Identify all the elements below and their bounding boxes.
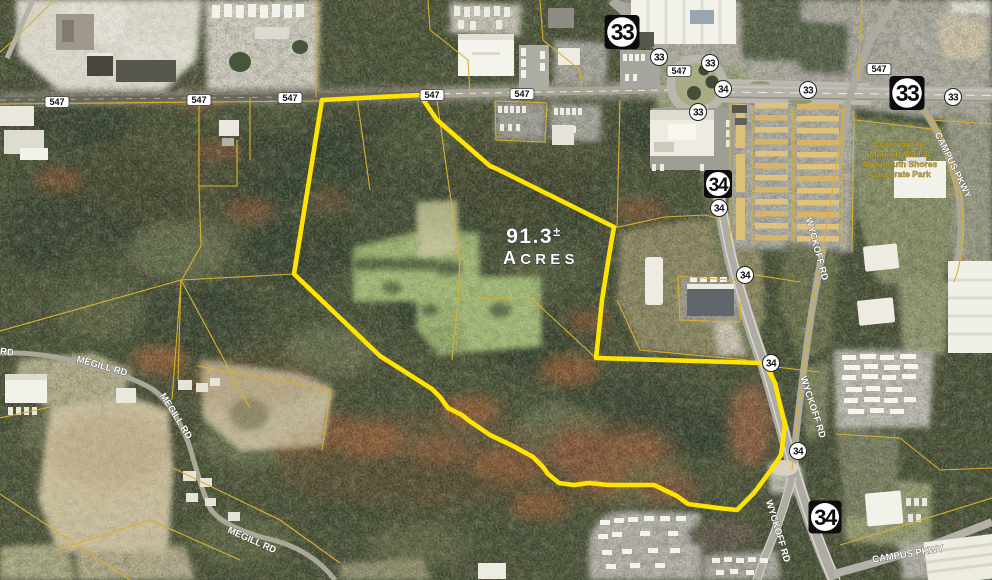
svg-text:547: 547 [49, 97, 64, 107]
svg-text:33: 33 [896, 80, 919, 106]
svg-text:34: 34 [709, 175, 729, 196]
svg-text:547: 547 [424, 90, 439, 100]
svg-text:33: 33 [948, 92, 959, 103]
svg-text:547: 547 [514, 89, 529, 99]
svg-text:547: 547 [671, 66, 686, 76]
svg-text:33: 33 [611, 19, 634, 45]
svg-text:Marriott Wall at: Marriott Wall at [869, 149, 930, 159]
svg-text:33: 33 [803, 85, 814, 96]
svg-text:34: 34 [793, 446, 804, 457]
svg-text:34: 34 [718, 84, 729, 95]
svg-text:ACRES: ACRES [503, 248, 579, 268]
svg-text:RD: RD [0, 346, 15, 359]
svg-text:33: 33 [693, 107, 704, 118]
svg-text:34: 34 [740, 270, 751, 281]
svg-text:34: 34 [714, 203, 725, 214]
svg-text:Corporate Park: Corporate Park [869, 169, 931, 179]
svg-text:Courtyard by: Courtyard by [874, 139, 927, 149]
svg-text:547: 547 [871, 64, 886, 74]
svg-text:34: 34 [814, 505, 838, 530]
svg-text:547: 547 [191, 95, 206, 105]
svg-text:33: 33 [705, 58, 716, 69]
svg-text:33: 33 [654, 52, 665, 63]
svg-text:Monmouth Shores: Monmouth Shores [863, 159, 938, 169]
svg-text:34: 34 [766, 358, 777, 369]
svg-text:547: 547 [282, 93, 297, 103]
